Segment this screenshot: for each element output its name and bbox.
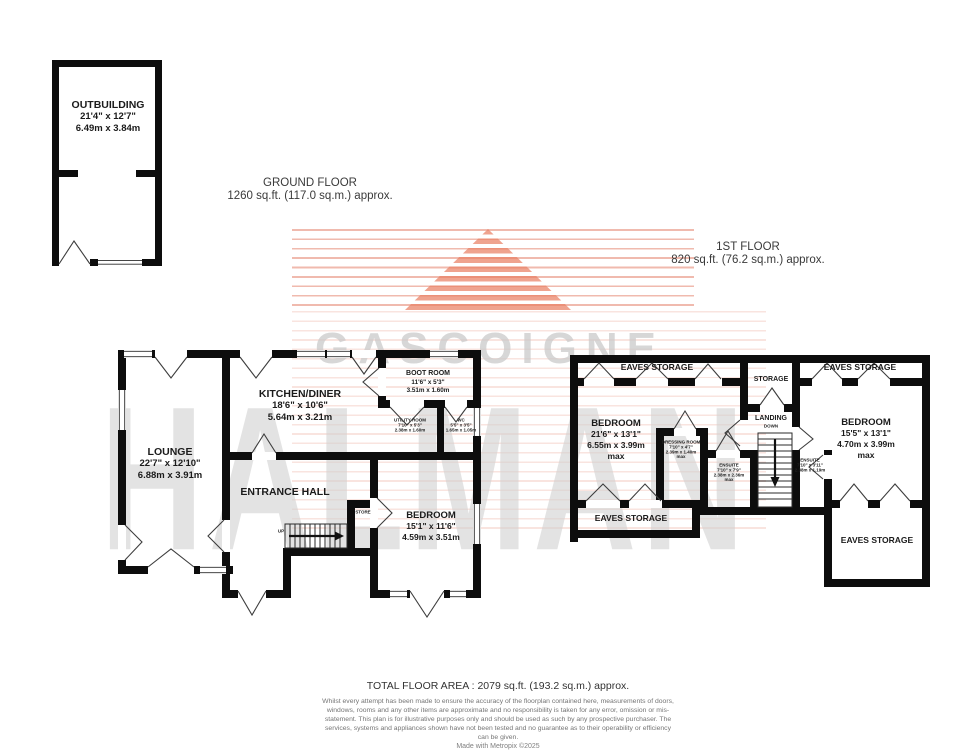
- room-label-outbuilding: OUTBUILDING 21'4" x 12'7" 6.49m x 3.84m: [72, 99, 145, 135]
- room-label-landing: LANDING: [755, 415, 787, 423]
- outbuilding-door-swing: [59, 241, 90, 266]
- room-label-kitchen-diner: KITCHEN/DINER 18'6" x 10'6" 5.64m x 3.21…: [259, 388, 341, 424]
- staircase-up: [285, 524, 347, 548]
- stairs-up-label: UP: [278, 529, 284, 534]
- first-floor-title: 1ST FLOOR: [671, 241, 824, 254]
- room-label-ensuite-2: ENSUITE 7'10" x 3'11" 2.38m x 1.19m: [795, 458, 825, 473]
- outbuilding-window-symbol: [98, 259, 142, 266]
- room-label-eaves-storage-tl: EAVES STORAGE: [621, 363, 693, 372]
- floorplan-page: GASCOIGNE HALMAN: [0, 0, 980, 751]
- ground-floor-title: GROUND FLOOR: [227, 177, 392, 190]
- first-floor-walls: [570, 355, 930, 587]
- total-floor-area: TOTAL FLOOR AREA : 2079 sq.ft. (193.2 sq…: [322, 680, 674, 692]
- room-label-bedroom-right: BEDROOM 15'5" x 13'1" 4.70m x 3.99m max: [837, 417, 895, 461]
- watermark-stripes: [292, 229, 694, 311]
- first-floor-drawing: [566, 351, 938, 591]
- room-label-eaves-storage-br: EAVES STORAGE: [841, 536, 913, 545]
- disclaimer-text: Whilst every attempt has been made to en…: [322, 697, 674, 742]
- room-label-eaves-storage-tr: EAVES STORAGE: [824, 363, 896, 372]
- first-floor-area: 820 sq.ft. (76.2 sq.m.) approx.: [671, 254, 824, 267]
- ground-floor-header: GROUND FLOOR 1260 sq.ft. (117.0 sq.m.) a…: [227, 177, 392, 202]
- outbuilding-drawing: [50, 58, 164, 270]
- metropix-credit: Made with Metropix ©2025: [322, 743, 674, 750]
- room-label-dressing-room: DRESSING ROOM 7'10" x 4'7" 2.39m x 1.40m…: [662, 440, 701, 460]
- room-label-entrance-hall: ENTRANCE HALL: [240, 486, 329, 498]
- room-label-ensuite: ENSUITE 7'10" x 7'9" 2.38m x 2.36m max: [714, 463, 744, 483]
- room-label-wc: WC 5'5" x 3'5" 1.65m x 1.05m: [446, 418, 476, 433]
- stairs-down-label: DOWN: [764, 424, 778, 429]
- ground-floor-area: 1260 sq.ft. (117.0 sq.m.) approx.: [227, 190, 392, 203]
- room-label-bedroom-left: BEDROOM 21'6" x 13'1" 6.55m x 3.99m max: [587, 418, 645, 462]
- first-floor-header: 1ST FLOOR 820 sq.ft. (76.2 sq.m.) approx…: [671, 241, 824, 266]
- brand-triangle-logo: [405, 229, 571, 310]
- room-label-utility-room: UTILITY ROOM 7'10" x 5'3" 2.38m x 1.60m: [394, 418, 426, 433]
- room-label-bedroom-ground: BEDROOM 15'1" x 11'6" 4.59m x 3.51m: [402, 510, 460, 543]
- staircase-down: [758, 433, 792, 507]
- room-label-store: STORE: [355, 510, 370, 515]
- outbuilding-walls: [52, 60, 162, 266]
- room-label-storage: STORAGE: [754, 376, 789, 384]
- room-label-lounge: LOUNGE 22'7" x 12'10" 6.88m x 3.91m: [138, 446, 202, 482]
- footer: TOTAL FLOOR AREA : 2079 sq.ft. (193.2 sq…: [322, 680, 674, 750]
- room-label-eaves-storage-bl: EAVES STORAGE: [595, 514, 667, 523]
- room-label-boot-room: BOOT ROOM 11'6" x 5'3" 3.51m x 1.60m: [406, 370, 450, 396]
